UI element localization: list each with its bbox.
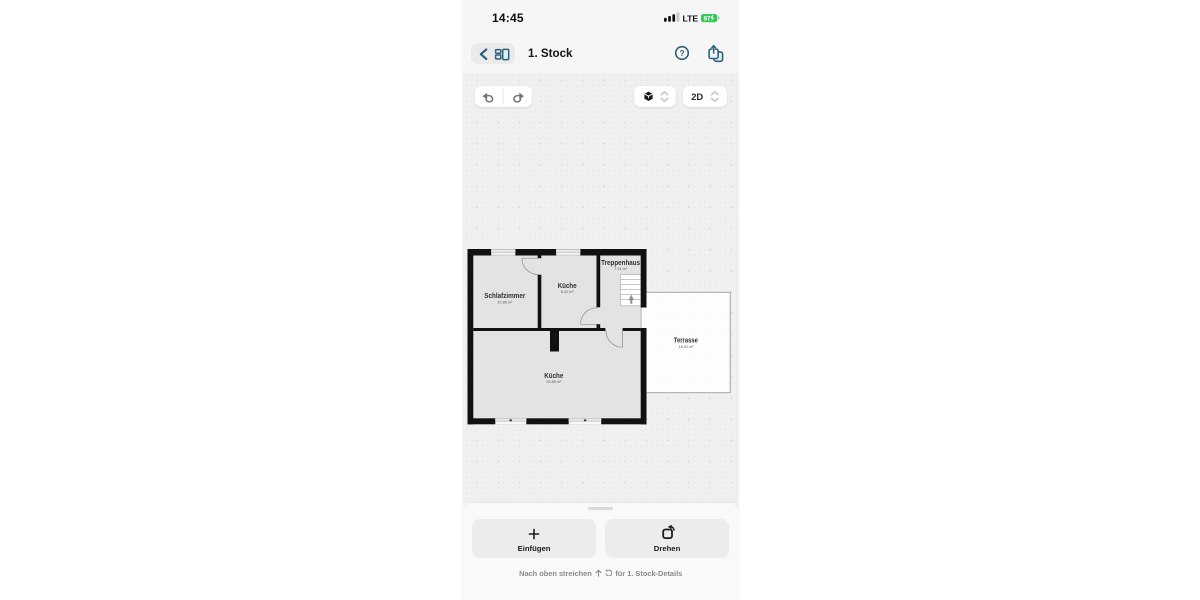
svg-text:Terrasse: Terrasse	[674, 335, 698, 344]
svg-text:Schlafzimmer: Schlafzimmer	[484, 293, 525, 300]
svg-text:8.42 m²: 8.42 m²	[561, 290, 575, 294]
svg-text:Treppenhaus: Treppenhaus	[601, 260, 640, 267]
svg-text:2D: 2D	[691, 91, 703, 102]
svg-text:?: ?	[679, 48, 684, 58]
svg-text:10.85 m²: 10.85 m²	[497, 300, 513, 304]
svg-text:7.14 m²: 7.14 m²	[614, 267, 628, 271]
svg-text:LTE: LTE	[683, 13, 699, 23]
svg-text:97: 97	[703, 16, 711, 23]
svg-text:33.85 m²: 33.85 m²	[546, 380, 562, 384]
svg-text:18.91 m²: 18.91 m²	[679, 345, 695, 349]
